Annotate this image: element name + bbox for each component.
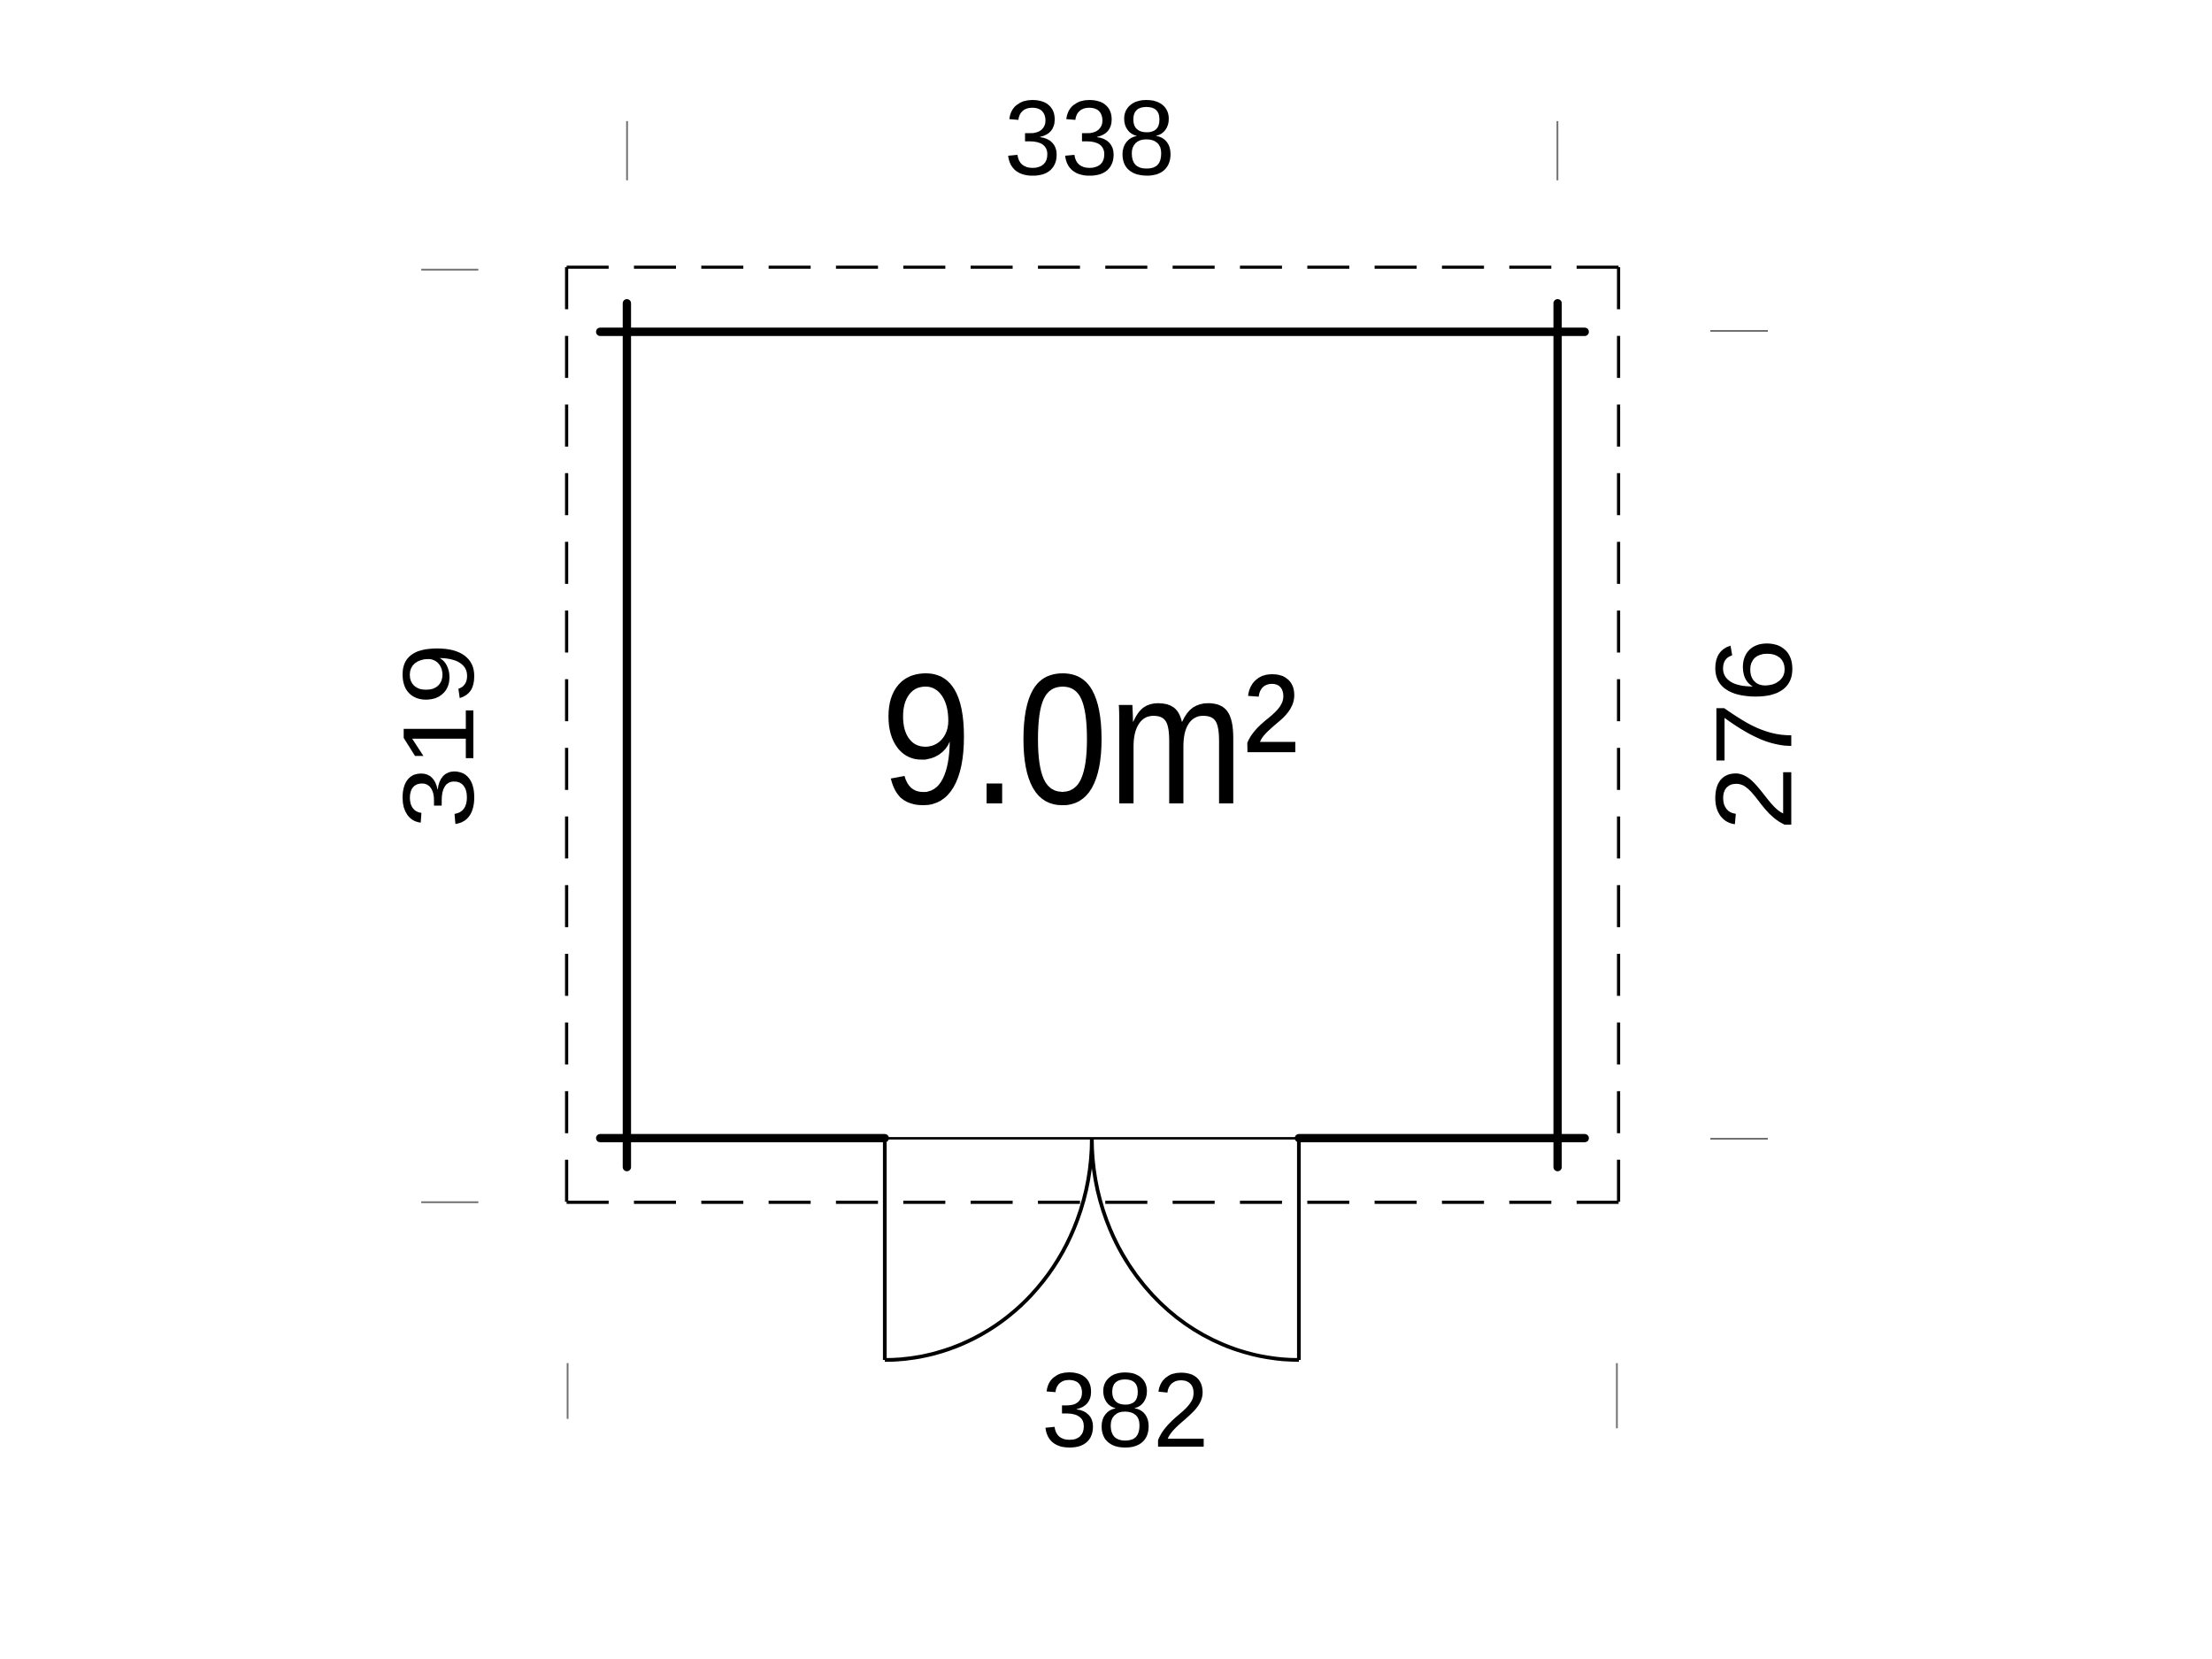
svg-text:9.0m²: 9.0m² [881, 634, 1299, 843]
svg-text:276: 276 [1694, 639, 1816, 831]
svg-text:382: 382 [1041, 1351, 1209, 1470]
svg-text:338: 338 [1004, 78, 1175, 198]
svg-text:319: 319 [383, 643, 495, 828]
